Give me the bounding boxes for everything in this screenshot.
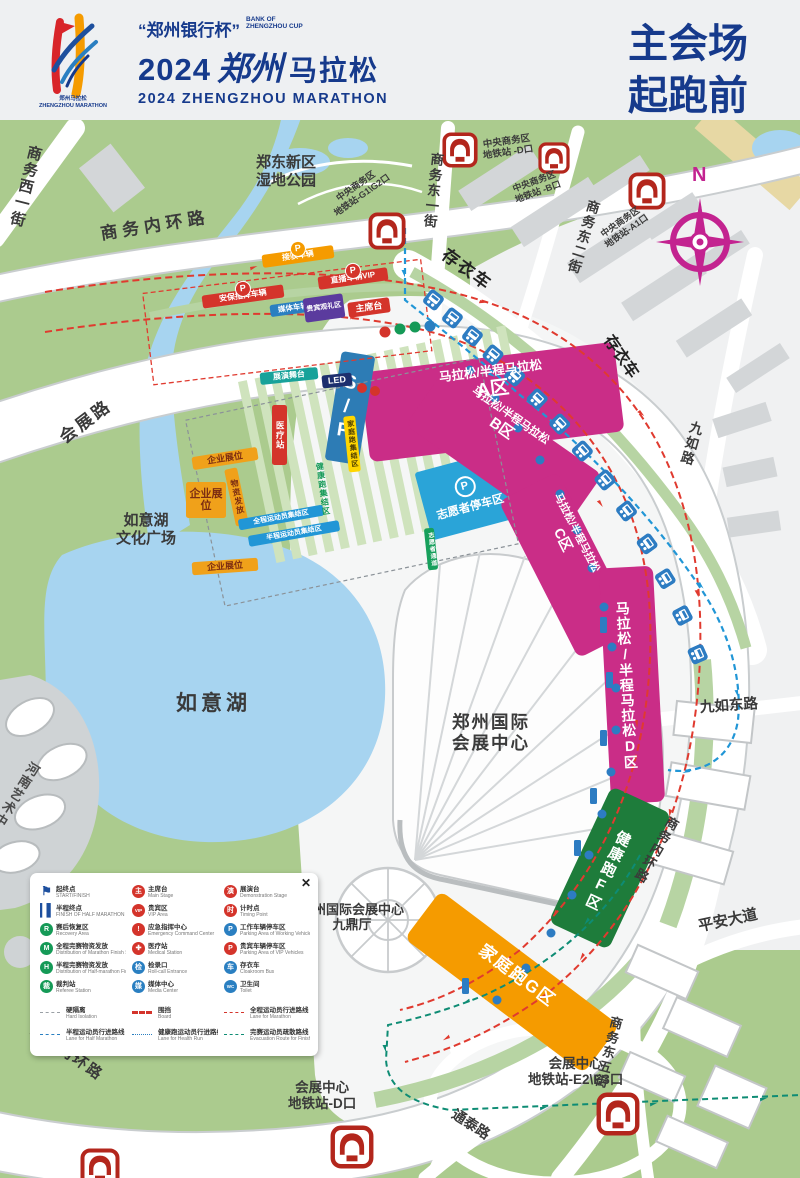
- demo-stage-icon: 演: [224, 885, 237, 898]
- compass-n-label: N: [692, 164, 706, 188]
- metro-icon: [370, 214, 403, 247]
- vip-parking-icon: P: [224, 942, 237, 955]
- half-lane-line-icon: [40, 1034, 60, 1035]
- page-title: 主会场 起跑前: [628, 18, 748, 122]
- rollcall-entrance-icon: 检: [132, 961, 145, 974]
- legend-line-item: 硬隔离Hard Isolation: [40, 1001, 126, 1023]
- legend-line-item: 完赛运动员疏散路线Evacuation Route for Finishers: [224, 1023, 310, 1045]
- header: 郑州马拉松 ZHENGZHOU MARATHON “郑州银行杯” BANK OF…: [0, 0, 800, 120]
- venue-map: 商务西一街 商务内环路 会展路 商务东一街 商务东二街 九如路 九如东路 平安大…: [0, 120, 800, 1178]
- hard-isolation-line-icon: [40, 1012, 60, 1013]
- half-finish-icon: ▌▌: [40, 904, 53, 917]
- legend-item: R赛后恢复区Recovery Area: [40, 920, 126, 938]
- marathon-lane-line-icon: [224, 1012, 244, 1013]
- recovery-area-icon: R: [40, 923, 53, 936]
- metro-station-label: 会展中心 地铁站-E2\E3口: [528, 1056, 623, 1088]
- emergency-command-icon: !: [132, 923, 145, 936]
- cup-title-en: BANK OFZHENGZHOU CUP: [246, 16, 303, 31]
- legend-item: ▌▌半程终点FINISH OF HALF MARATHON: [40, 901, 126, 919]
- medical-station-icon: ✚: [132, 942, 145, 955]
- legend-item: 演展演台Demonstration Stage: [224, 882, 310, 900]
- legend-items-grid: ⚑起终点START/FINISH ▌▌半程终点FINISH OF HALF MA…: [40, 882, 310, 995]
- legend-line-item: 全程运动员行进路线Lane for Marathon: [224, 1001, 310, 1023]
- metro-icon: [333, 1128, 372, 1167]
- legend-item: WC卫生间Toilet: [224, 977, 310, 995]
- legend-item: M全程完赛物资发放Distribution of Marathon Finish…: [40, 939, 126, 957]
- title-block: “郑州银行杯” BANK OFZHENGZHOU CUP 2024 郑州 马拉松…: [138, 16, 388, 107]
- start-finish-icon: ⚑: [40, 885, 53, 898]
- legend-line-item: 健康跑运动员行进路线Lane for Health Run: [132, 1023, 218, 1045]
- legend-close-button[interactable]: ✕: [301, 876, 311, 890]
- metro-icon: [444, 134, 476, 166]
- legend-lines-grid: 硬隔离Hard Isolation 围挡Board 全程运动员行进路线Lane …: [40, 1001, 310, 1045]
- half-supply-icon: H: [40, 961, 53, 974]
- legend-item: 检检录口Roll-call Entrance: [132, 958, 218, 976]
- cup-title-cn: “郑州银行杯”: [138, 16, 240, 41]
- metro-station-label: 会展中心 地铁站-D口: [288, 1080, 356, 1112]
- place-label-ruyi-lake: 如意湖: [176, 692, 251, 717]
- legend-item: ⚑起终点START/FINISH: [40, 882, 126, 900]
- legend-item: 主主席台Main Stage: [132, 882, 218, 900]
- evacuation-route-line-icon: [224, 1034, 244, 1035]
- toilet-icon: WC: [224, 980, 237, 993]
- cloakroom-bus-icon: 车: [224, 961, 237, 974]
- vip-area-icon: VIP: [132, 904, 145, 917]
- medical-station-tower: 医疗站: [272, 405, 287, 465]
- title-script-cn: 郑州: [217, 42, 283, 90]
- marathon-supply-icon: M: [40, 942, 53, 955]
- legend-line-item: 半程运动员行进路线Lane for Half Marathon: [40, 1023, 126, 1045]
- metro-icon: [83, 1151, 118, 1178]
- legend-item: P工作车辆停车区Parking Area of Working Vehicles: [224, 920, 310, 938]
- board-line-icon: [132, 1011, 152, 1014]
- legend-line-item: 围挡Board: [132, 1001, 218, 1023]
- legend-item: H半程完赛物资发放Distribution of Half-marathon F…: [40, 958, 126, 976]
- legend-item: ✚医疗站Medical Station: [132, 939, 218, 957]
- media-center-icon: 媒: [132, 980, 145, 993]
- title-cn: 马拉松: [289, 49, 379, 89]
- legend-item: 裁裁判站Referee Station: [40, 977, 126, 995]
- title-en: 2024 ZHENGZHOU MARATHON: [138, 91, 388, 107]
- metro-icon: [599, 1095, 638, 1134]
- legend-item: 媒媒体中心Media Center: [132, 977, 218, 995]
- legend-item: 时计时点Timing Point: [224, 901, 310, 919]
- event-logo: [30, 12, 122, 98]
- marathon-venue-map-page: 郑州马拉松 ZHENGZHOU MARATHON “郑州银行杯” BANK OF…: [0, 0, 800, 1178]
- legend-item: 车存衣车Cloakroom Bus: [224, 958, 310, 976]
- logo-badge-text: 郑州马拉松 ZHENGZHOU MARATHON: [18, 96, 128, 109]
- parking-icon: P: [452, 473, 478, 499]
- main-stage-icon: 主: [132, 885, 145, 898]
- referee-station-icon: 裁: [40, 980, 53, 993]
- legend-panel: ✕ ⚑起终点START/FINISH ▌▌半程终点FINISH OF HALF …: [30, 873, 318, 1056]
- place-label-wetland-park: 郑东新区 湿地公园: [256, 154, 316, 189]
- exhibitor-booth-tag: 企业展位: [186, 482, 226, 518]
- health-run-lane-line-icon: [132, 1034, 152, 1035]
- legend-item: P贵宾车辆停车区Parking Area of VIP Vehicles: [224, 939, 310, 957]
- working-parking-icon: P: [224, 923, 237, 936]
- legend-item: !应急指挥中心Emergency Command Center: [132, 920, 218, 938]
- metro-icon: [630, 174, 663, 207]
- place-label-culture-plaza: 如意湖 文化广场: [116, 512, 176, 547]
- timing-point-icon: 时: [224, 904, 237, 917]
- place-label-convention-center: 郑州国际 会展中心: [452, 712, 530, 753]
- legend-item: VIP贵宾区VIP Area: [132, 901, 218, 919]
- title-year: 2024: [138, 52, 211, 88]
